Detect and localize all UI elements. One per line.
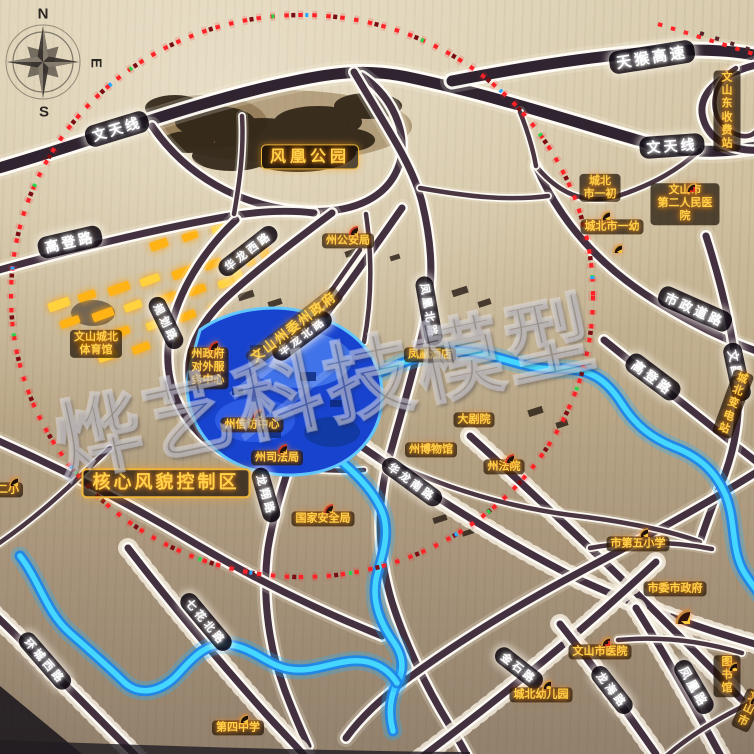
place-label-no4-middle-school: 第四中学 bbox=[212, 720, 264, 735]
place-label-chengbei-shiyiyou: 城北市一幼 bbox=[581, 219, 644, 234]
compass-e: E bbox=[88, 58, 105, 68]
school-icon bbox=[603, 234, 622, 253]
star-icon bbox=[268, 434, 287, 453]
star-icon bbox=[314, 494, 333, 513]
place-label-no5-primary-school: 市第五小学 bbox=[607, 536, 670, 551]
cross-icon bbox=[591, 627, 610, 646]
place-label-fenghuang-hotel: 凤凰酒店 bbox=[404, 347, 456, 362]
star-icon bbox=[495, 444, 514, 463]
place-label-zhou-museum: 州博物馆 bbox=[405, 442, 457, 457]
place-label-chengbei-kindergarten: 城北幼儿园 bbox=[510, 687, 573, 702]
school-icon bbox=[229, 704, 248, 723]
place-label-grand-theater: 大剧院 bbox=[454, 412, 495, 427]
book-icon bbox=[718, 652, 737, 671]
compass-n: N bbox=[38, 6, 49, 23]
place-label-zhou-govt-service-center: 州政府 对外服 务中心 bbox=[188, 347, 229, 389]
place-label-core-style-control-zone: 核心风貌控制区 bbox=[82, 468, 251, 498]
star-icon bbox=[243, 399, 262, 418]
place-label-zhou-sifaju: 州司法局 bbox=[251, 450, 303, 465]
place-label-zhou-xinfang-center: 州信访中心 bbox=[221, 417, 284, 432]
place-label-wenshan-chengbei-gym: 文山城北 体育馆 bbox=[70, 330, 122, 358]
school-icon bbox=[739, 685, 754, 704]
compass-s: S bbox=[39, 104, 49, 121]
place-label-wenshan-east-toll: 文山东 收费站 bbox=[714, 70, 741, 151]
school-icon bbox=[0, 467, 18, 486]
school-icon bbox=[629, 518, 648, 537]
place-label-zhou-gonganju: 州公安局 bbox=[322, 233, 374, 248]
star-icon bbox=[339, 216, 358, 235]
book-icon bbox=[532, 670, 551, 689]
place-label-chengbei-shiyichu: 城北 市一初 bbox=[580, 174, 621, 202]
cross-icon bbox=[676, 173, 695, 192]
place-label-fenghuang-park: 风凰公园 bbox=[261, 144, 359, 169]
place-label-wenshan-hospital: 文山市医院 bbox=[569, 644, 632, 659]
road-label-wentianxian-e: 文天线 bbox=[639, 133, 705, 159]
place-label-guojia-anquanju: 国家安全局 bbox=[292, 511, 355, 526]
illuminated-city-model-photo: N S E 文天线天猴高速文天线高登路规划路华龙西路华龙北路凤凰北路市政道路高登… bbox=[0, 0, 754, 754]
star-icon bbox=[199, 331, 218, 350]
school-icon bbox=[591, 201, 610, 220]
bigstar-icon bbox=[660, 594, 690, 624]
